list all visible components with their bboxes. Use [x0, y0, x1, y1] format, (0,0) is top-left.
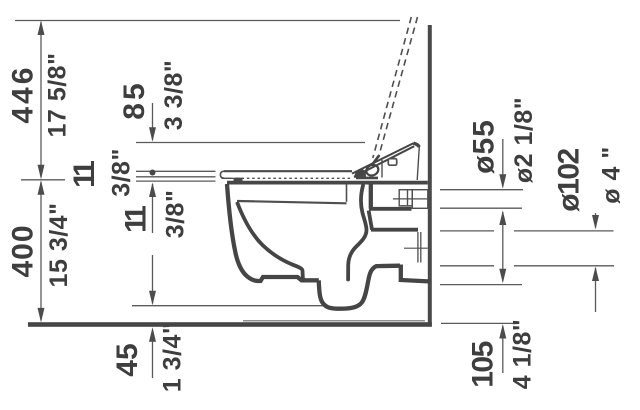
- svg-text:3/8": 3/8": [162, 190, 190, 239]
- svg-text:ø102: ø102: [552, 149, 585, 212]
- svg-text:4 1/8": 4 1/8": [509, 319, 537, 389]
- svg-text:11: 11: [68, 161, 101, 188]
- svg-text:ø 4 ": ø 4 ": [598, 146, 626, 203]
- svg-text:85: 85: [118, 80, 151, 119]
- svg-text:11: 11: [119, 206, 152, 233]
- svg-text:3/8": 3/8": [108, 148, 136, 197]
- svg-text:45: 45: [111, 343, 144, 376]
- svg-text:15 3/4": 15 3/4": [45, 203, 73, 288]
- svg-text:446: 446: [6, 65, 39, 124]
- svg-text:17 5/8": 17 5/8": [44, 53, 72, 138]
- svg-text:105: 105: [466, 341, 499, 387]
- svg-text:3 3/8": 3 3/8": [160, 60, 188, 130]
- svg-text:ø2 1/8": ø2 1/8": [510, 97, 538, 183]
- svg-text:400: 400: [6, 224, 39, 277]
- svg-text:1 3/4": 1 3/4": [159, 322, 187, 392]
- svg-text:ø55: ø55: [467, 119, 500, 174]
